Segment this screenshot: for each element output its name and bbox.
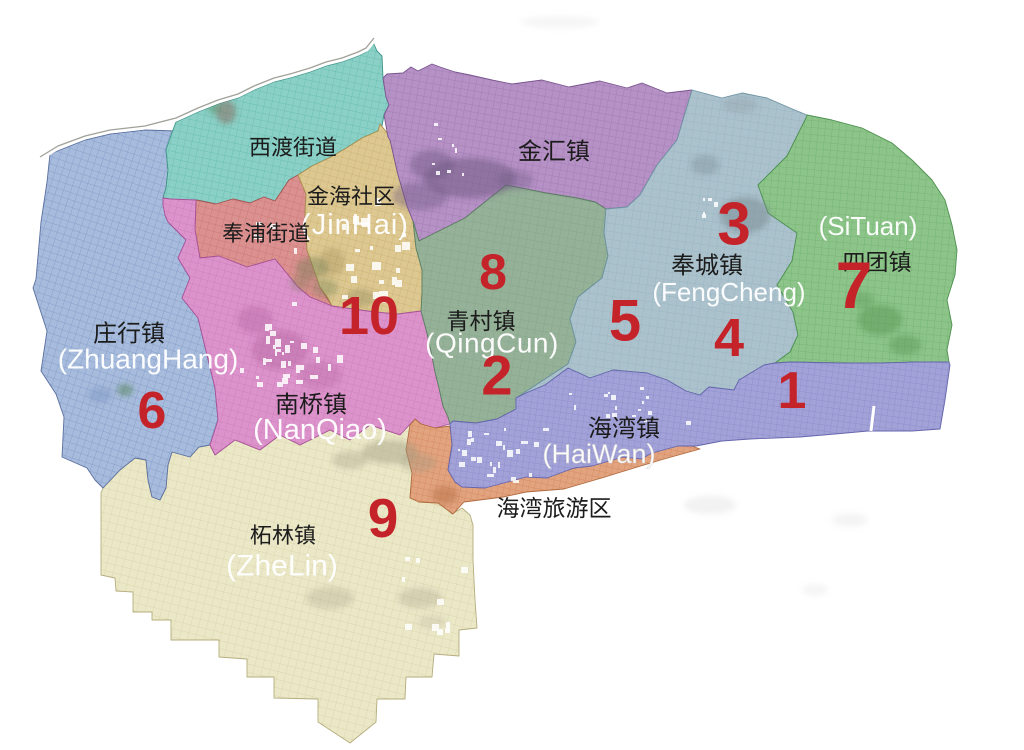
svg-text:(HaiWan): (HaiWan) [542, 439, 655, 469]
svg-text:(ZheLin): (ZheLin) [226, 550, 338, 583]
svg-text:1: 1 [778, 362, 807, 420]
svg-text:(NanQiao): (NanQiao) [253, 414, 387, 446]
svg-text:(JinHai): (JinHai) [301, 209, 409, 241]
svg-text:(ZhuangHang): (ZhuangHang) [58, 344, 239, 375]
svg-text:7: 7 [836, 248, 873, 322]
svg-text:9: 9 [368, 487, 399, 549]
svg-text:10: 10 [339, 286, 399, 346]
svg-text:2: 2 [481, 344, 512, 407]
svg-text:6: 6 [138, 382, 167, 440]
svg-text:5: 5 [609, 289, 641, 354]
svg-text:(SiTuan): (SiTuan) [819, 211, 918, 241]
svg-text:4: 4 [714, 308, 744, 368]
svg-text:3: 3 [717, 191, 750, 258]
svg-text:8: 8 [479, 244, 507, 300]
svg-text:(FengCheng): (FengCheng) [652, 277, 805, 307]
